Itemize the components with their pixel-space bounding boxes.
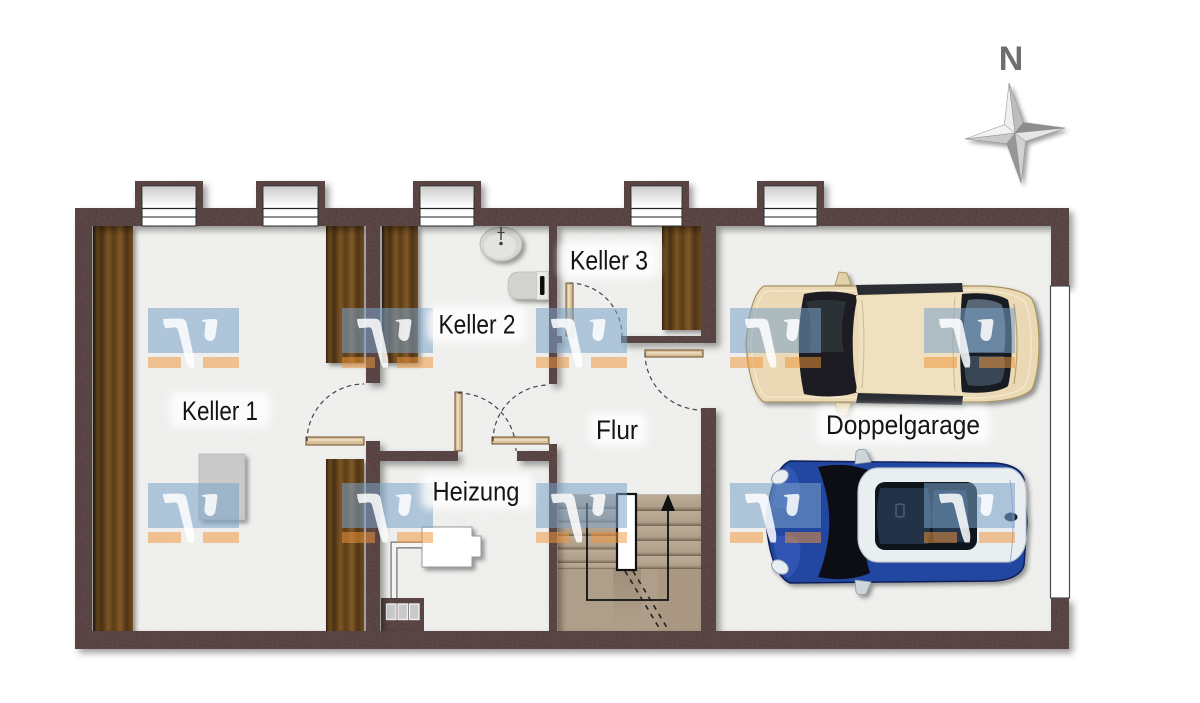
svg-text:N: N [999,40,1024,78]
svg-text:Keller 3: Keller 3 [570,246,648,276]
svg-text:Keller 1: Keller 1 [182,396,258,426]
svg-text:Heizung: Heizung [433,477,520,507]
svg-text:Doppelgarage: Doppelgarage [826,410,980,440]
svg-text:Flur: Flur [596,415,638,445]
svg-text:Keller 2: Keller 2 [439,310,516,340]
